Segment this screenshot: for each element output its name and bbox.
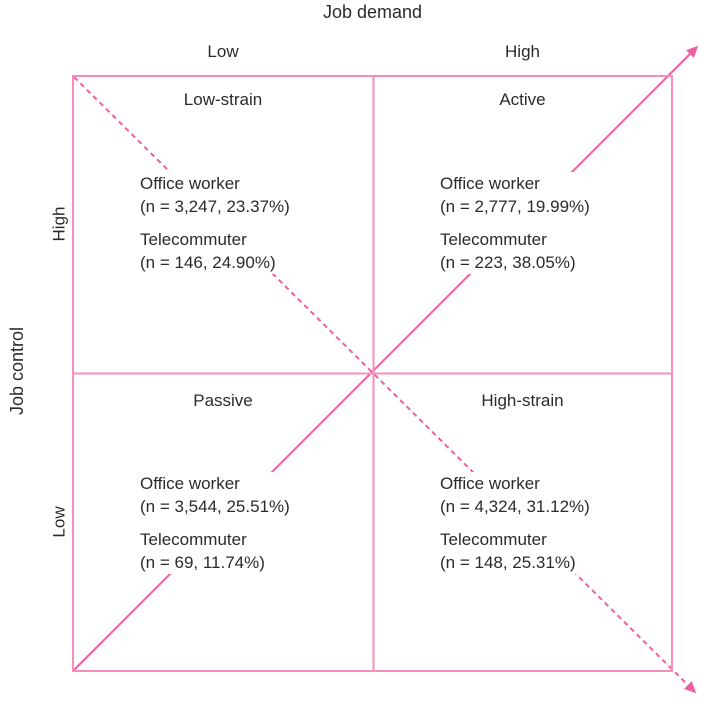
group-stat: (n = 2,777, 19.99%) (440, 197, 590, 216)
group-office-worker: Office worker(n = 4,324, 31.12%) (440, 472, 590, 518)
group-name: Telecommuter (440, 230, 547, 249)
group-stat: (n = 4,324, 31.12%) (440, 497, 590, 516)
group-name: Office worker (140, 174, 240, 193)
quadrant-title-low-strain: Low-strain (73, 90, 373, 110)
quadrant-title-high-strain: High-strain (373, 391, 672, 411)
group-telecommuter: Telecommuter(n = 148, 25.31%) (440, 528, 590, 574)
group-name: Telecommuter (140, 530, 247, 549)
group-telecommuter: Telecommuter(n = 223, 38.05%) (440, 228, 590, 274)
active-direction-arrow (74, 49, 695, 670)
group-name: Office worker (140, 474, 240, 493)
group-name: Telecommuter (140, 230, 247, 249)
group-office-worker: Office worker(n = 3,247, 23.37%) (140, 172, 290, 218)
y-axis-high-label: High (48, 207, 69, 242)
quadrant-data-passive: Office worker(n = 3,544, 25.51%) Telecom… (138, 472, 292, 574)
quadrant-title-active: Active (373, 90, 672, 110)
group-stat: (n = 146, 24.90%) (140, 253, 276, 272)
group-name: Office worker (440, 174, 540, 193)
quadrant-data-high-strain: Office worker(n = 4,324, 31.12%) Telecom… (438, 472, 592, 574)
quadrant-data-active: Office worker(n = 2,777, 19.99%) Telecom… (438, 172, 592, 274)
group-name: Telecommuter (440, 530, 547, 549)
group-stat: (n = 223, 38.05%) (440, 253, 576, 272)
group-stat: (n = 69, 11.74%) (140, 553, 265, 572)
group-office-worker: Office worker(n = 2,777, 19.99%) (440, 172, 590, 218)
group-telecommuter: Telecommuter(n = 146, 24.90%) (140, 228, 290, 274)
group-stat: (n = 148, 25.31%) (440, 553, 576, 572)
group-stat: (n = 3,544, 25.51%) (140, 497, 290, 516)
quadrant-data-low-strain: Office worker(n = 3,247, 23.37%) Telecom… (138, 172, 292, 274)
group-telecommuter: Telecommuter(n = 69, 11.74%) (140, 528, 290, 574)
y-axis-low-label: Low (48, 506, 69, 537)
quadrant-title-passive: Passive (73, 391, 373, 411)
x-axis-low-label: Low (73, 41, 373, 62)
group-office-worker: Office worker(n = 3,544, 25.51%) (140, 472, 290, 518)
x-axis-title: Job demand (73, 1, 672, 24)
strain-direction-arrow (74, 77, 693, 690)
group-name: Office worker (440, 474, 540, 493)
group-stat: (n = 3,247, 23.37%) (140, 197, 290, 216)
y-axis-title: Job control (6, 327, 29, 415)
job-demand-control-diagram: Job demand Low High Job control High Low… (0, 0, 709, 709)
x-axis-high-label: High (373, 41, 672, 62)
